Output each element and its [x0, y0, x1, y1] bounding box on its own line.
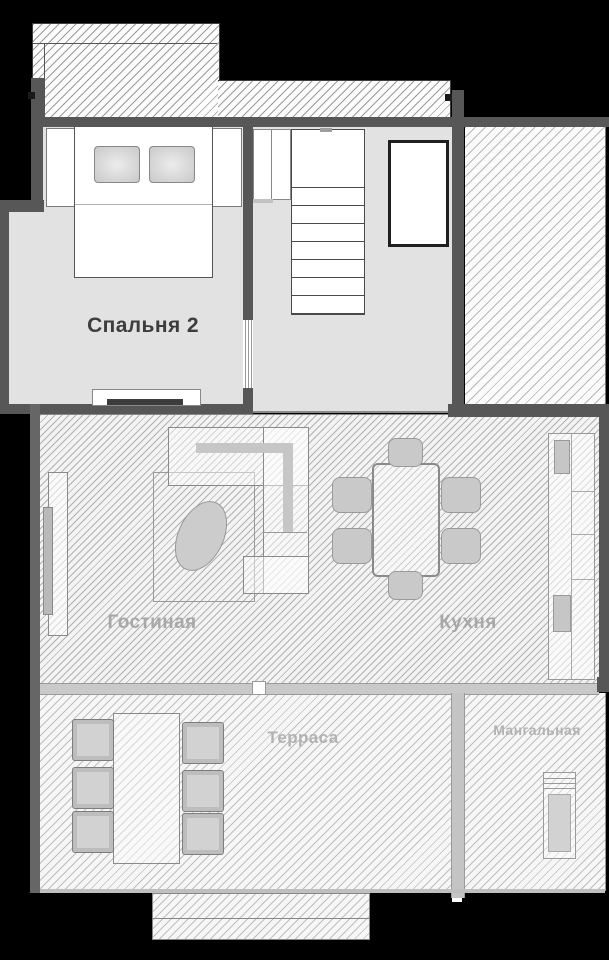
dining-chair-top [388, 438, 423, 467]
wall-kitchen-right [599, 417, 609, 692]
terrace-bbq-divider [451, 693, 465, 898]
wall-void-bottom [448, 404, 609, 417]
grill-line-2 [544, 783, 575, 784]
grill-body [548, 794, 571, 852]
dining-table [372, 463, 440, 577]
living-kitchen-area [40, 414, 599, 684]
terrace-chair-r2 [182, 770, 224, 812]
wall-hall-right [452, 90, 464, 417]
label-terrace: Терраса [233, 729, 373, 748]
bedroom-window-frame [107, 399, 183, 405]
dining-chair-right-2 [441, 528, 481, 564]
divider-end-mark [452, 898, 462, 902]
terrace-chair-l3 [72, 811, 114, 853]
entry-steps [152, 893, 370, 940]
closet-panel-2 [271, 129, 291, 200]
roof-hatch-right [218, 80, 451, 118]
nightstand-right [211, 128, 242, 207]
sofa-chaise [243, 556, 309, 594]
step-line [153, 918, 369, 919]
staircase [291, 129, 365, 315]
wall-left-upper [31, 117, 43, 212]
terrace-chair-r3 [182, 813, 224, 855]
blanket-line [75, 204, 212, 205]
nightstand-left [46, 128, 76, 207]
roof-hatch-left-line-h [33, 43, 217, 44]
counter-cabinet-line-3 [571, 579, 594, 580]
closet-base-strip [253, 199, 273, 203]
label-bedroom2: Спальня 2 [43, 314, 243, 337]
terrace-divider-band [33, 683, 599, 695]
dining-chair-bottom [388, 571, 423, 600]
terrace-chair-l1 [72, 719, 114, 761]
label-living: Гостиная [72, 613, 232, 634]
wall-left-lower [0, 200, 9, 414]
label-bbq: Мангальная [467, 723, 607, 738]
counter-cabinet-line-1 [571, 491, 594, 492]
sofa-seam-line [263, 532, 307, 533]
counter-cabinet-line-2 [571, 534, 594, 535]
dining-chair-right-1 [441, 477, 481, 513]
counter-divider-line [571, 434, 572, 679]
stair-treads [292, 187, 364, 314]
void-zone [465, 127, 606, 405]
grill-line-1 [544, 778, 575, 779]
hinge-dot-left [28, 92, 35, 99]
dining-chair-left-2 [332, 528, 372, 564]
sofa-back-cushion-right [283, 443, 293, 533]
bbq-grill [543, 772, 576, 859]
stair-top-mark [320, 128, 332, 132]
tv-screen [43, 507, 53, 615]
floor-plan: Спальня 2 Гостиная Кухня Терраса Мангаль… [0, 0, 609, 960]
divider-column [252, 681, 266, 695]
sofa-back-cushion-top [196, 443, 290, 453]
bedroom-door [243, 320, 253, 388]
roof-hatch-left-line-v [44, 44, 45, 117]
pillow-right [149, 146, 195, 183]
balcony-edge-line [253, 411, 449, 413]
wall-living-left [30, 404, 40, 893]
pillow-left [94, 146, 140, 183]
closet-panel-1 [253, 129, 272, 200]
terrace-table [113, 713, 180, 864]
terrace-chair-l2 [72, 767, 114, 809]
stove [553, 595, 571, 632]
dining-chair-left-1 [332, 477, 372, 513]
label-kitchen: Кухня [408, 613, 528, 634]
roof-hatch-left [32, 23, 220, 119]
sink [554, 440, 570, 474]
wardrobe [388, 140, 449, 247]
hinge-dot-right [445, 94, 452, 101]
grill-line-3 [544, 788, 575, 789]
terrace-chair-r1 [182, 722, 224, 764]
